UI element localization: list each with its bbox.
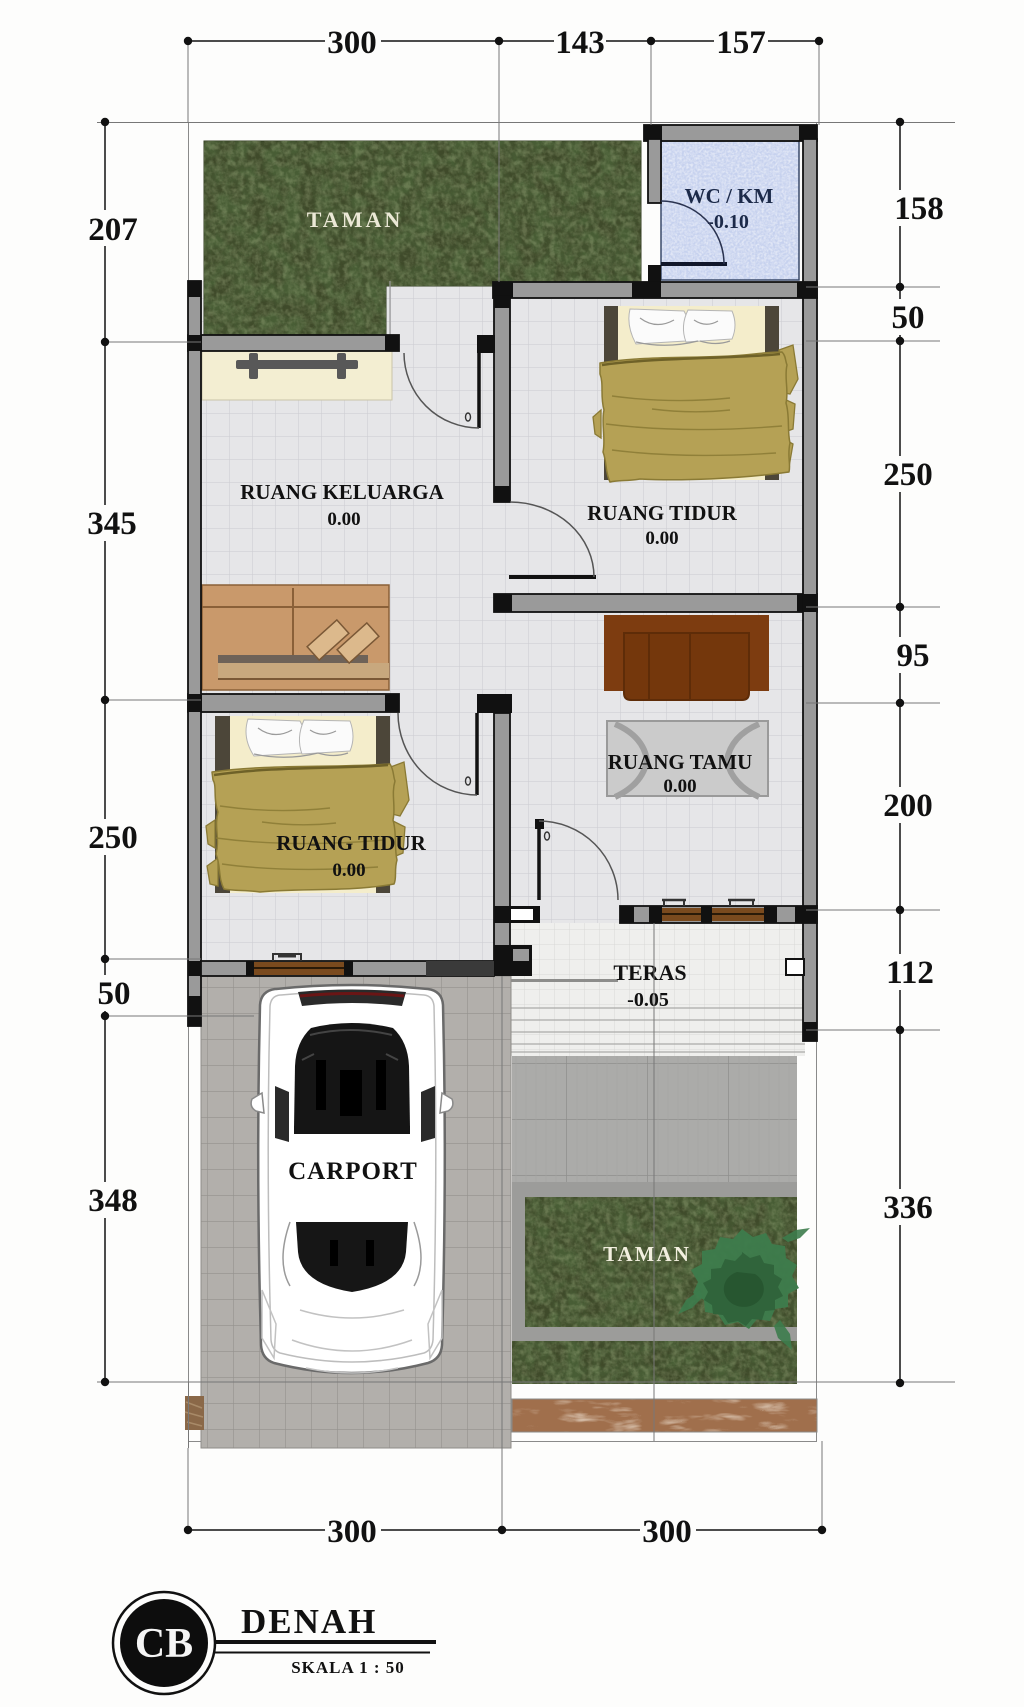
svg-text:0.00: 0.00 [663, 776, 696, 797]
svg-text:CARPORT: CARPORT [288, 1158, 418, 1185]
svg-text:RUANG TIDUR: RUANG TIDUR [587, 501, 737, 525]
svg-text:250: 250 [88, 820, 138, 856]
svg-text:157: 157 [716, 25, 766, 61]
svg-text:DENAH: DENAH [241, 1602, 377, 1641]
svg-text:0.00: 0.00 [645, 528, 678, 549]
svg-text:RUANG TAMU: RUANG TAMU [608, 750, 752, 774]
svg-text:0.00: 0.00 [327, 509, 360, 530]
svg-text:TERAS: TERAS [613, 960, 686, 985]
svg-text:RUANG KELUARGA: RUANG KELUARGA [240, 480, 444, 504]
svg-text:250: 250 [883, 457, 933, 493]
svg-text:RUANG TIDUR: RUANG TIDUR [276, 831, 426, 855]
svg-text:112: 112 [886, 955, 934, 991]
svg-text:95: 95 [897, 638, 930, 674]
svg-text:348: 348 [88, 1183, 138, 1219]
svg-text:50: 50 [98, 976, 131, 1012]
svg-text:300: 300 [327, 1514, 377, 1550]
svg-text:CB: CB [135, 1621, 193, 1667]
svg-text:336: 336 [883, 1190, 933, 1226]
svg-text:TAMAN: TAMAN [603, 1242, 691, 1266]
svg-text:300: 300 [642, 1514, 692, 1550]
svg-text:WC / KM: WC / KM [685, 184, 774, 208]
svg-text:SKALA 1 : 50: SKALA 1 : 50 [291, 1658, 405, 1677]
svg-text:50: 50 [892, 300, 925, 336]
svg-text:345: 345 [87, 506, 137, 542]
svg-text:TAMAN: TAMAN [307, 207, 403, 232]
svg-text:0.00: 0.00 [332, 860, 365, 881]
svg-text:158: 158 [894, 191, 944, 227]
svg-text:143: 143 [555, 25, 605, 61]
svg-text:200: 200 [883, 788, 933, 824]
svg-text:-0.05: -0.05 [627, 989, 669, 1011]
svg-text:207: 207 [88, 212, 138, 248]
svg-text:300: 300 [327, 25, 377, 61]
